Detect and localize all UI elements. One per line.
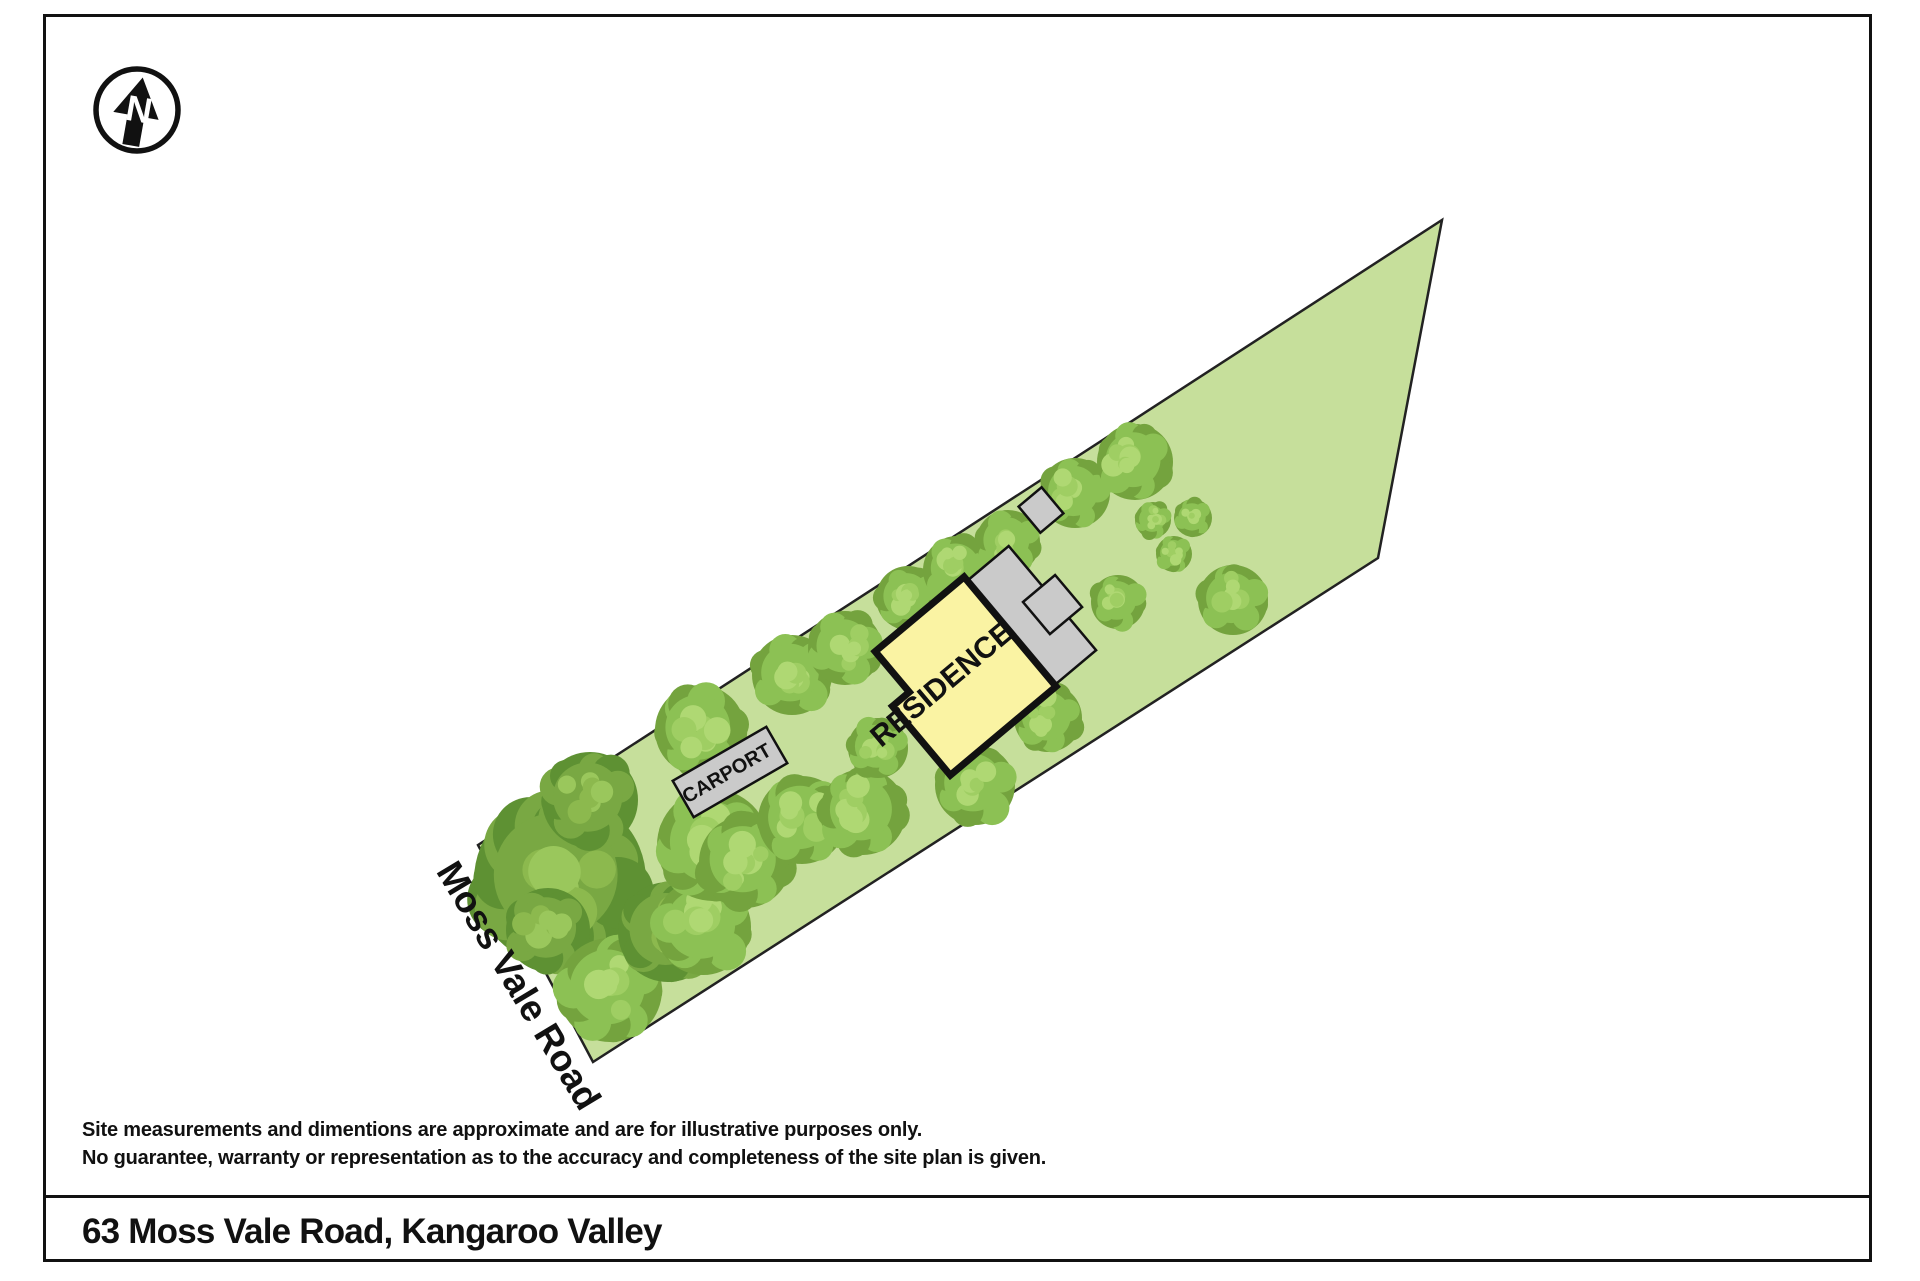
address-title: 63 Moss Vale Road, Kangaroo Valley bbox=[82, 1212, 662, 1252]
disclaimer-line-2: No guarantee, warranty or representation… bbox=[82, 1144, 1046, 1172]
disclaimer-line-1: Site measurements and dimentions are app… bbox=[82, 1116, 1046, 1144]
tree bbox=[808, 610, 883, 685]
footer-separator bbox=[46, 1195, 1872, 1198]
plan-shapes bbox=[467, 220, 1442, 1062]
site-plan: Moss Vale Road RESIDENCE CARPORT bbox=[0, 0, 1920, 1281]
tree bbox=[1156, 536, 1192, 572]
disclaimer: Site measurements and dimentions are app… bbox=[82, 1116, 1046, 1172]
page: N Moss Vale Road RESIDENCE CARPORT Site … bbox=[0, 0, 1920, 1281]
